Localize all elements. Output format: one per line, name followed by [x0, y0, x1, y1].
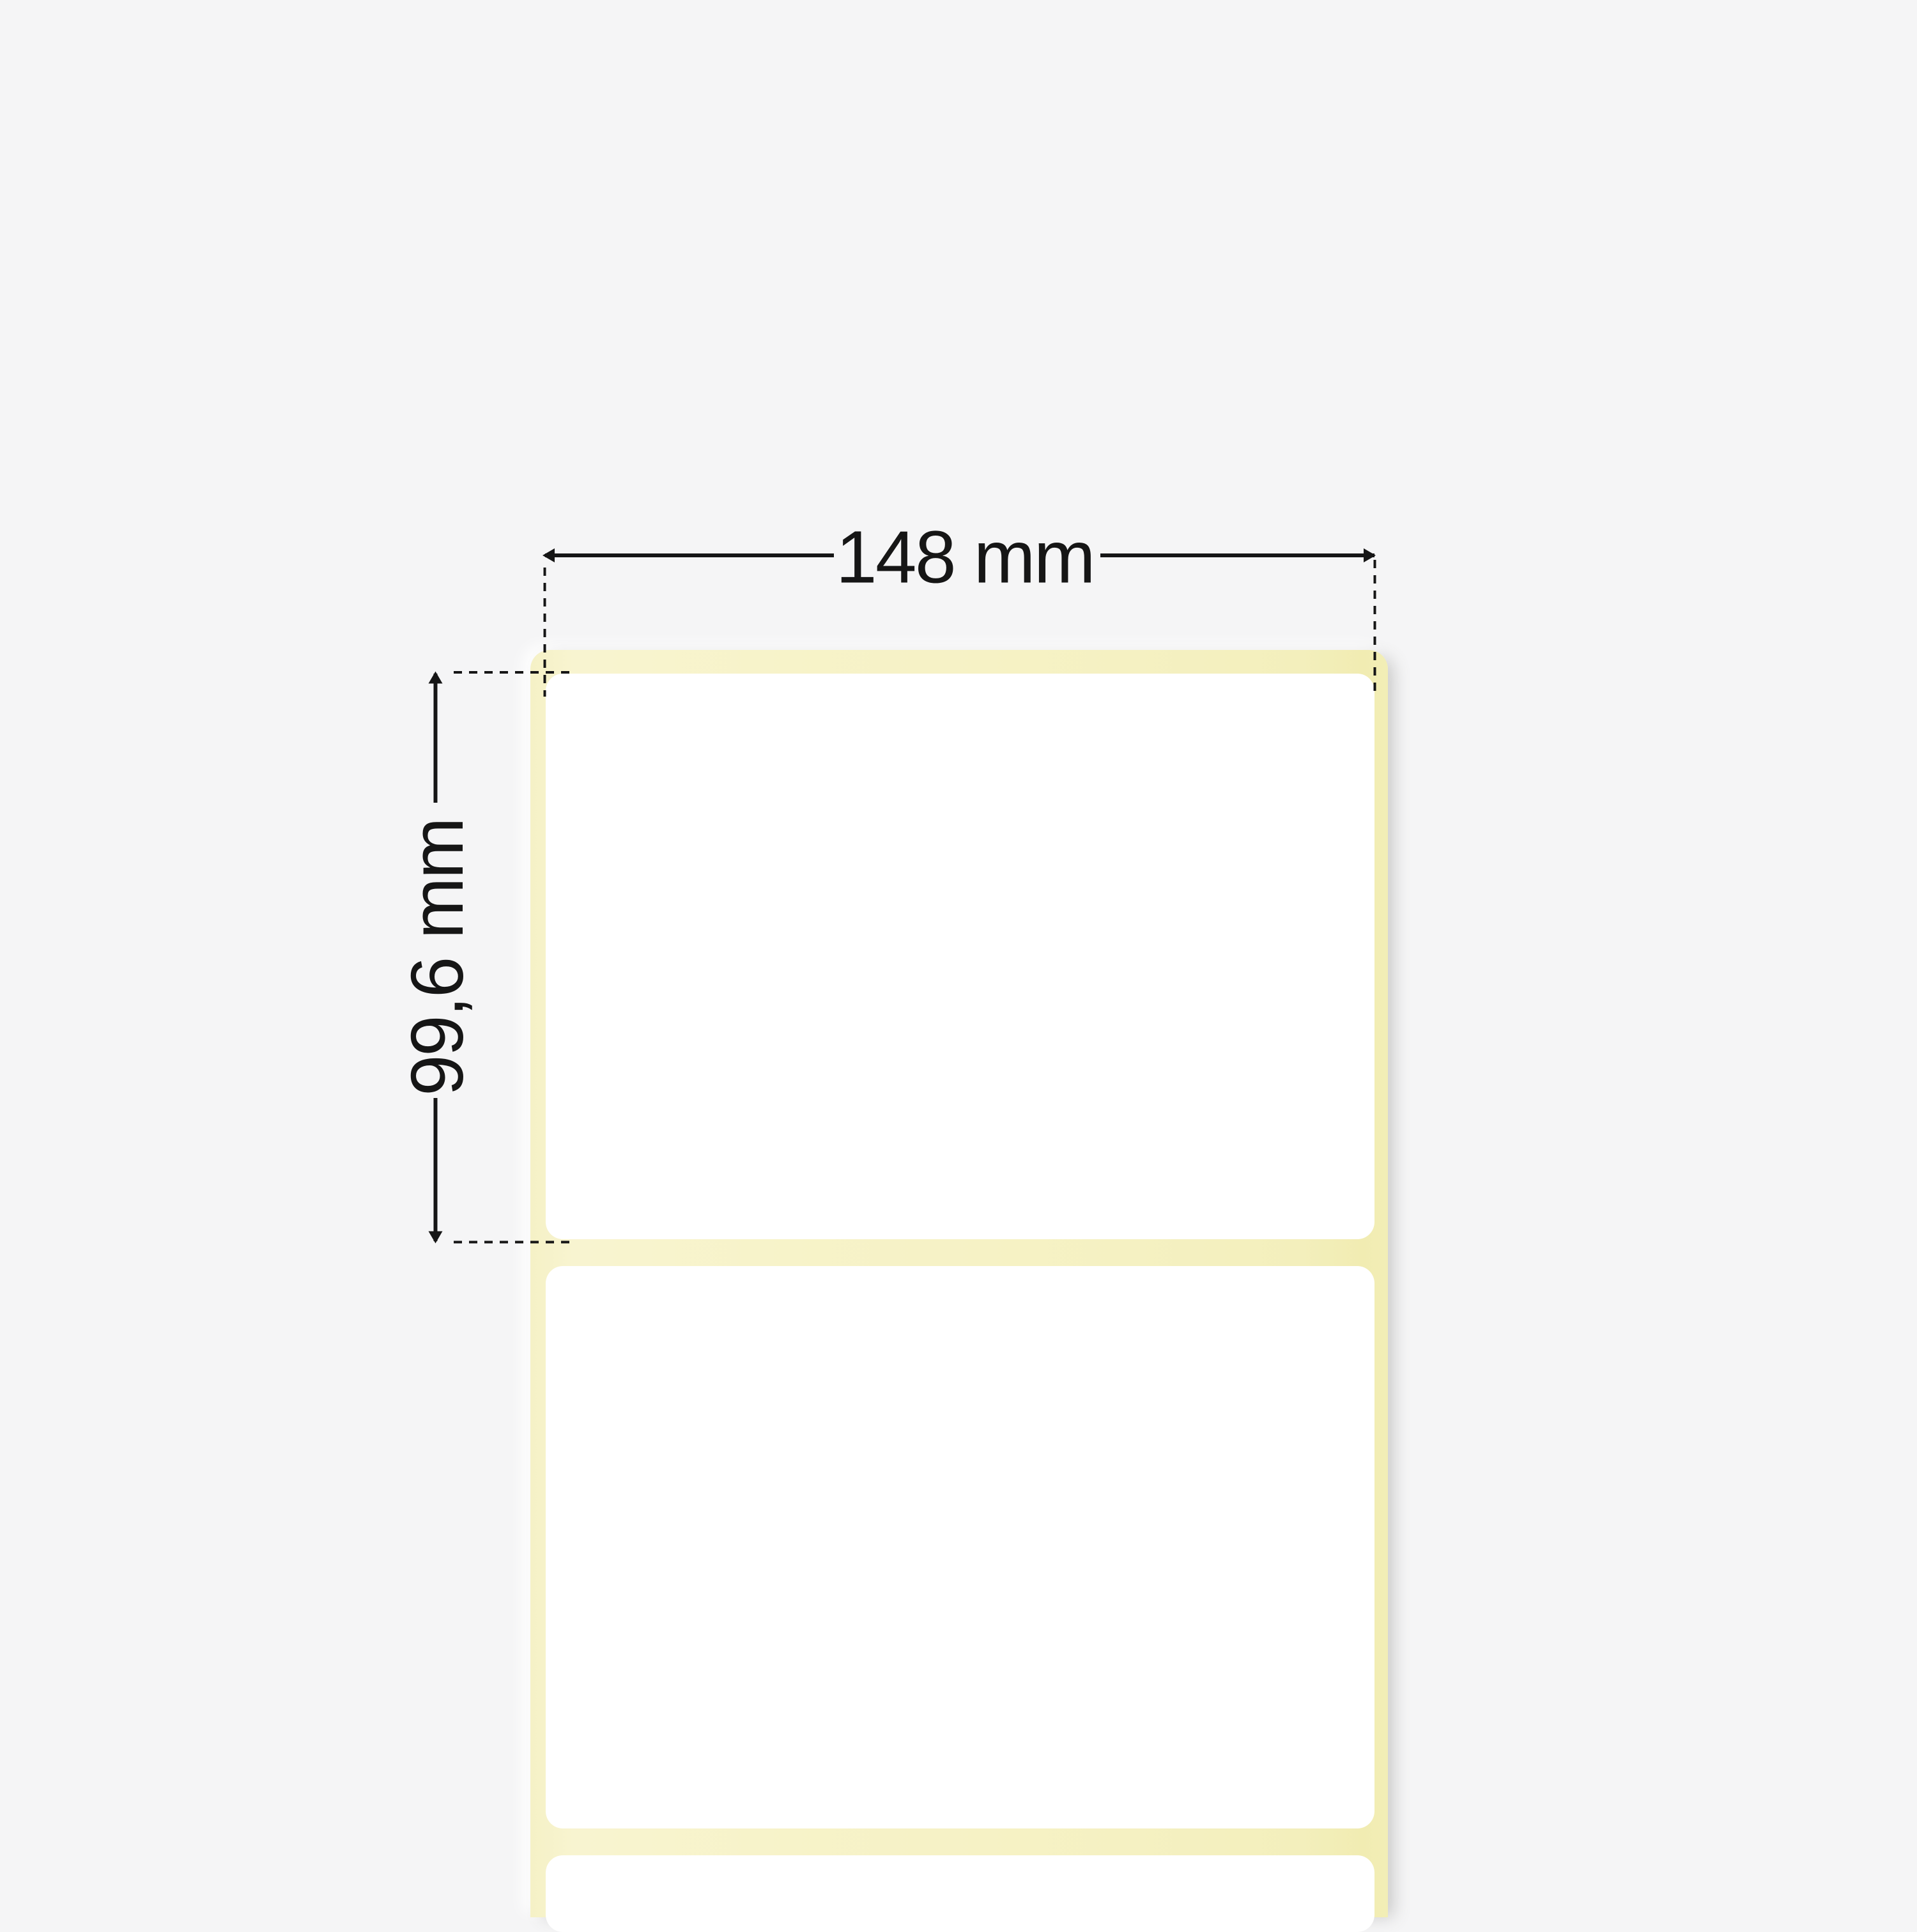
svg-text:99,6 mm: 99,6 mm	[396, 819, 479, 1096]
svg-text:148 mm: 148 mm	[836, 516, 1094, 599]
